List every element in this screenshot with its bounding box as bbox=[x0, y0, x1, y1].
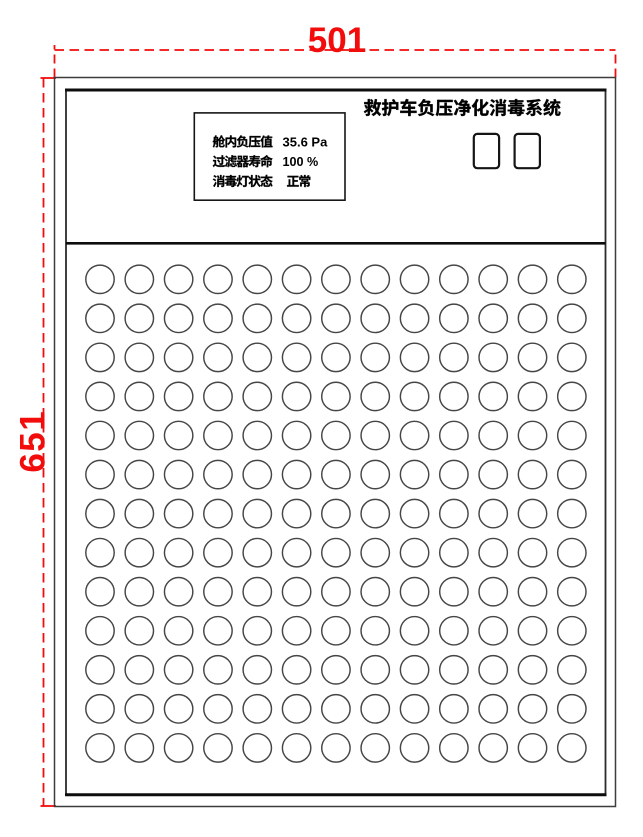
svg-text:100 %: 100 % bbox=[283, 155, 319, 169]
svg-text:35.6 Pa: 35.6 Pa bbox=[283, 134, 329, 149]
svg-text:651: 651 bbox=[14, 410, 53, 473]
svg-text:501: 501 bbox=[308, 21, 366, 60]
